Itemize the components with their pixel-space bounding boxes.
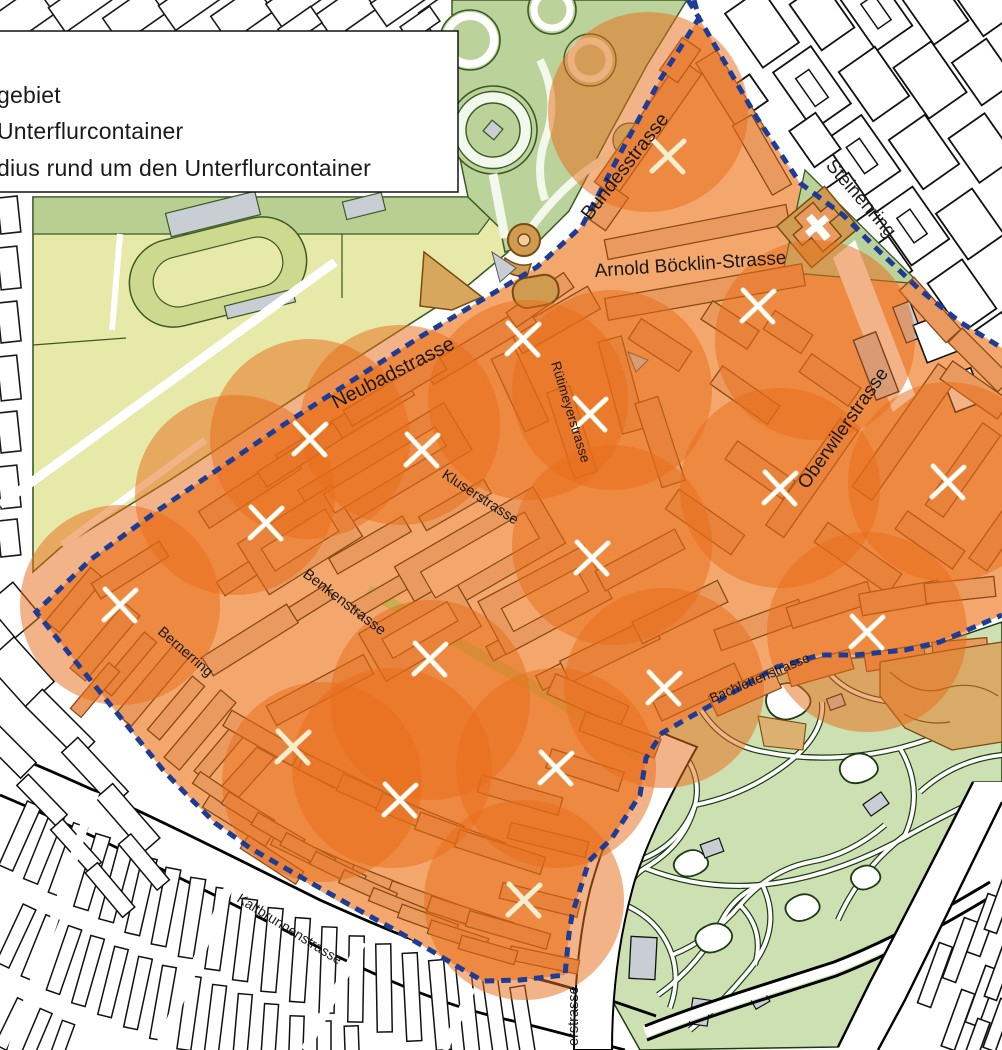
svg-text:dius rund um den Unterflurcont: dius rund um den Unterflurcontainer [0, 155, 371, 181]
svg-text:gebiet: gebiet [0, 82, 61, 108]
svg-text:erstrasse: erstrasse [566, 986, 582, 1046]
svg-text:Unterflurcontainer: Unterflurcontainer [0, 118, 184, 144]
